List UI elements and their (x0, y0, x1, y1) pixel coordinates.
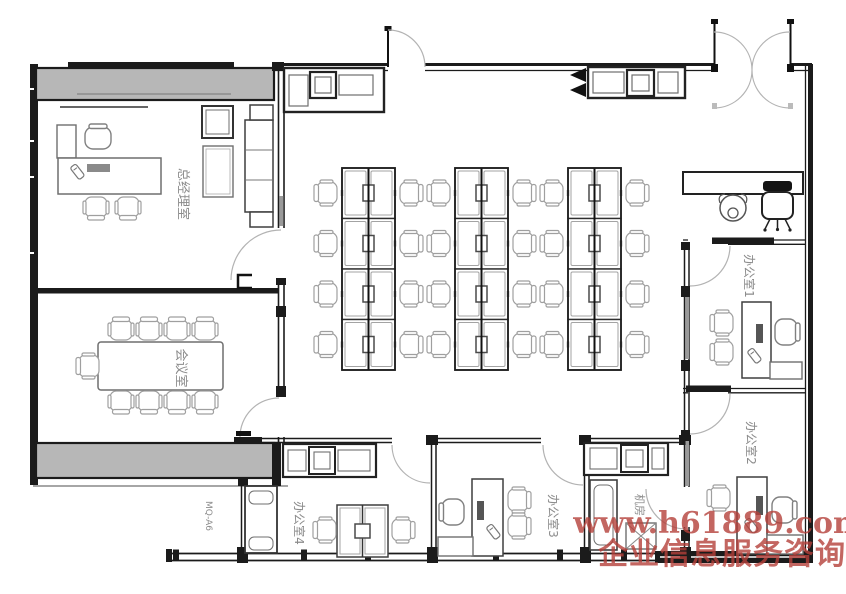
chair (136, 317, 162, 340)
conference-table (98, 342, 223, 390)
person-figure (719, 194, 747, 221)
gm-office-label: 总经理室 (175, 168, 191, 220)
reception-area (683, 172, 803, 232)
office3-label: 办公室3 (546, 494, 561, 538)
guest-chair (710, 310, 733, 336)
meeting-room-door (236, 398, 279, 437)
watermark: www.h61889.com 企业信息服务咨询 (572, 506, 846, 572)
chair (164, 391, 190, 414)
chair (313, 517, 336, 543)
office4-label: 办公室4 (292, 501, 307, 545)
office2-label: 办公室2 (744, 421, 759, 465)
right-wall (808, 64, 813, 563)
reception-chair (762, 181, 793, 232)
workstation-cluster (427, 168, 536, 370)
sofa (245, 105, 273, 227)
office4-door (392, 445, 430, 483)
side-table (203, 146, 233, 197)
chair (192, 317, 218, 340)
guest-chair (710, 339, 733, 365)
chair (164, 317, 190, 340)
workstation-cluster (540, 168, 649, 370)
monitor (756, 324, 763, 343)
watermark-url: www.h61889.com (572, 506, 846, 541)
monitor (477, 501, 484, 520)
office3-left-wall (432, 443, 437, 553)
wall-cabinet-left (284, 68, 384, 112)
executive-desk (58, 158, 161, 194)
wall-cabinet-right (588, 67, 685, 98)
guest-chair (508, 487, 531, 513)
floor-plan-canvas: 总经理室 会议室 办公室1 办公室2 (0, 0, 846, 594)
meeting-room-label: 会议室 (173, 348, 189, 387)
workstation-cluster (314, 168, 423, 370)
chair (108, 391, 134, 414)
desk-return (770, 362, 802, 379)
office3: 办公室3 (438, 479, 561, 556)
office1-label: 办公室1 (742, 254, 757, 298)
executive-chair (85, 124, 111, 149)
meeting-room: 会议室 (76, 317, 223, 414)
guest-chair (508, 513, 531, 539)
window-band-top (36, 68, 274, 100)
chair (76, 353, 99, 379)
cabinet (202, 106, 233, 138)
keyboard (87, 164, 110, 172)
left-wall (30, 64, 38, 485)
executive-chair (439, 499, 464, 525)
paired-desks (337, 505, 388, 557)
chair (108, 317, 134, 340)
desk-return (57, 125, 76, 158)
wall-cabinet (283, 444, 376, 477)
guest-chair (115, 197, 141, 220)
gm-office-door (231, 230, 281, 288)
outer-walls (29, 62, 813, 563)
office1: 办公室1 (710, 254, 802, 379)
wall-cabinet (584, 443, 668, 475)
office1-door (690, 246, 730, 286)
chair (392, 517, 415, 543)
desk-return (438, 537, 473, 556)
desk (472, 479, 503, 556)
office2-door (690, 394, 730, 434)
chair (192, 391, 218, 414)
office3-door (543, 445, 583, 485)
guest-chair (83, 197, 109, 220)
chair (136, 391, 162, 414)
open-office-workstations (314, 168, 649, 370)
double-swing-door (711, 19, 794, 109)
window-band-bottom (36, 443, 274, 478)
bottom-offices-top-wall (234, 439, 683, 443)
tall-cabinet (245, 486, 277, 553)
executive-chair (775, 319, 800, 345)
door-tag-label: MQ-A6 (203, 501, 213, 531)
main-entrance-door (385, 26, 426, 67)
watermark-caption: 企业信息服务咨询 (598, 537, 846, 572)
entrance-arrow-icons (570, 68, 586, 97)
gm-office: 总经理室 (57, 105, 273, 227)
